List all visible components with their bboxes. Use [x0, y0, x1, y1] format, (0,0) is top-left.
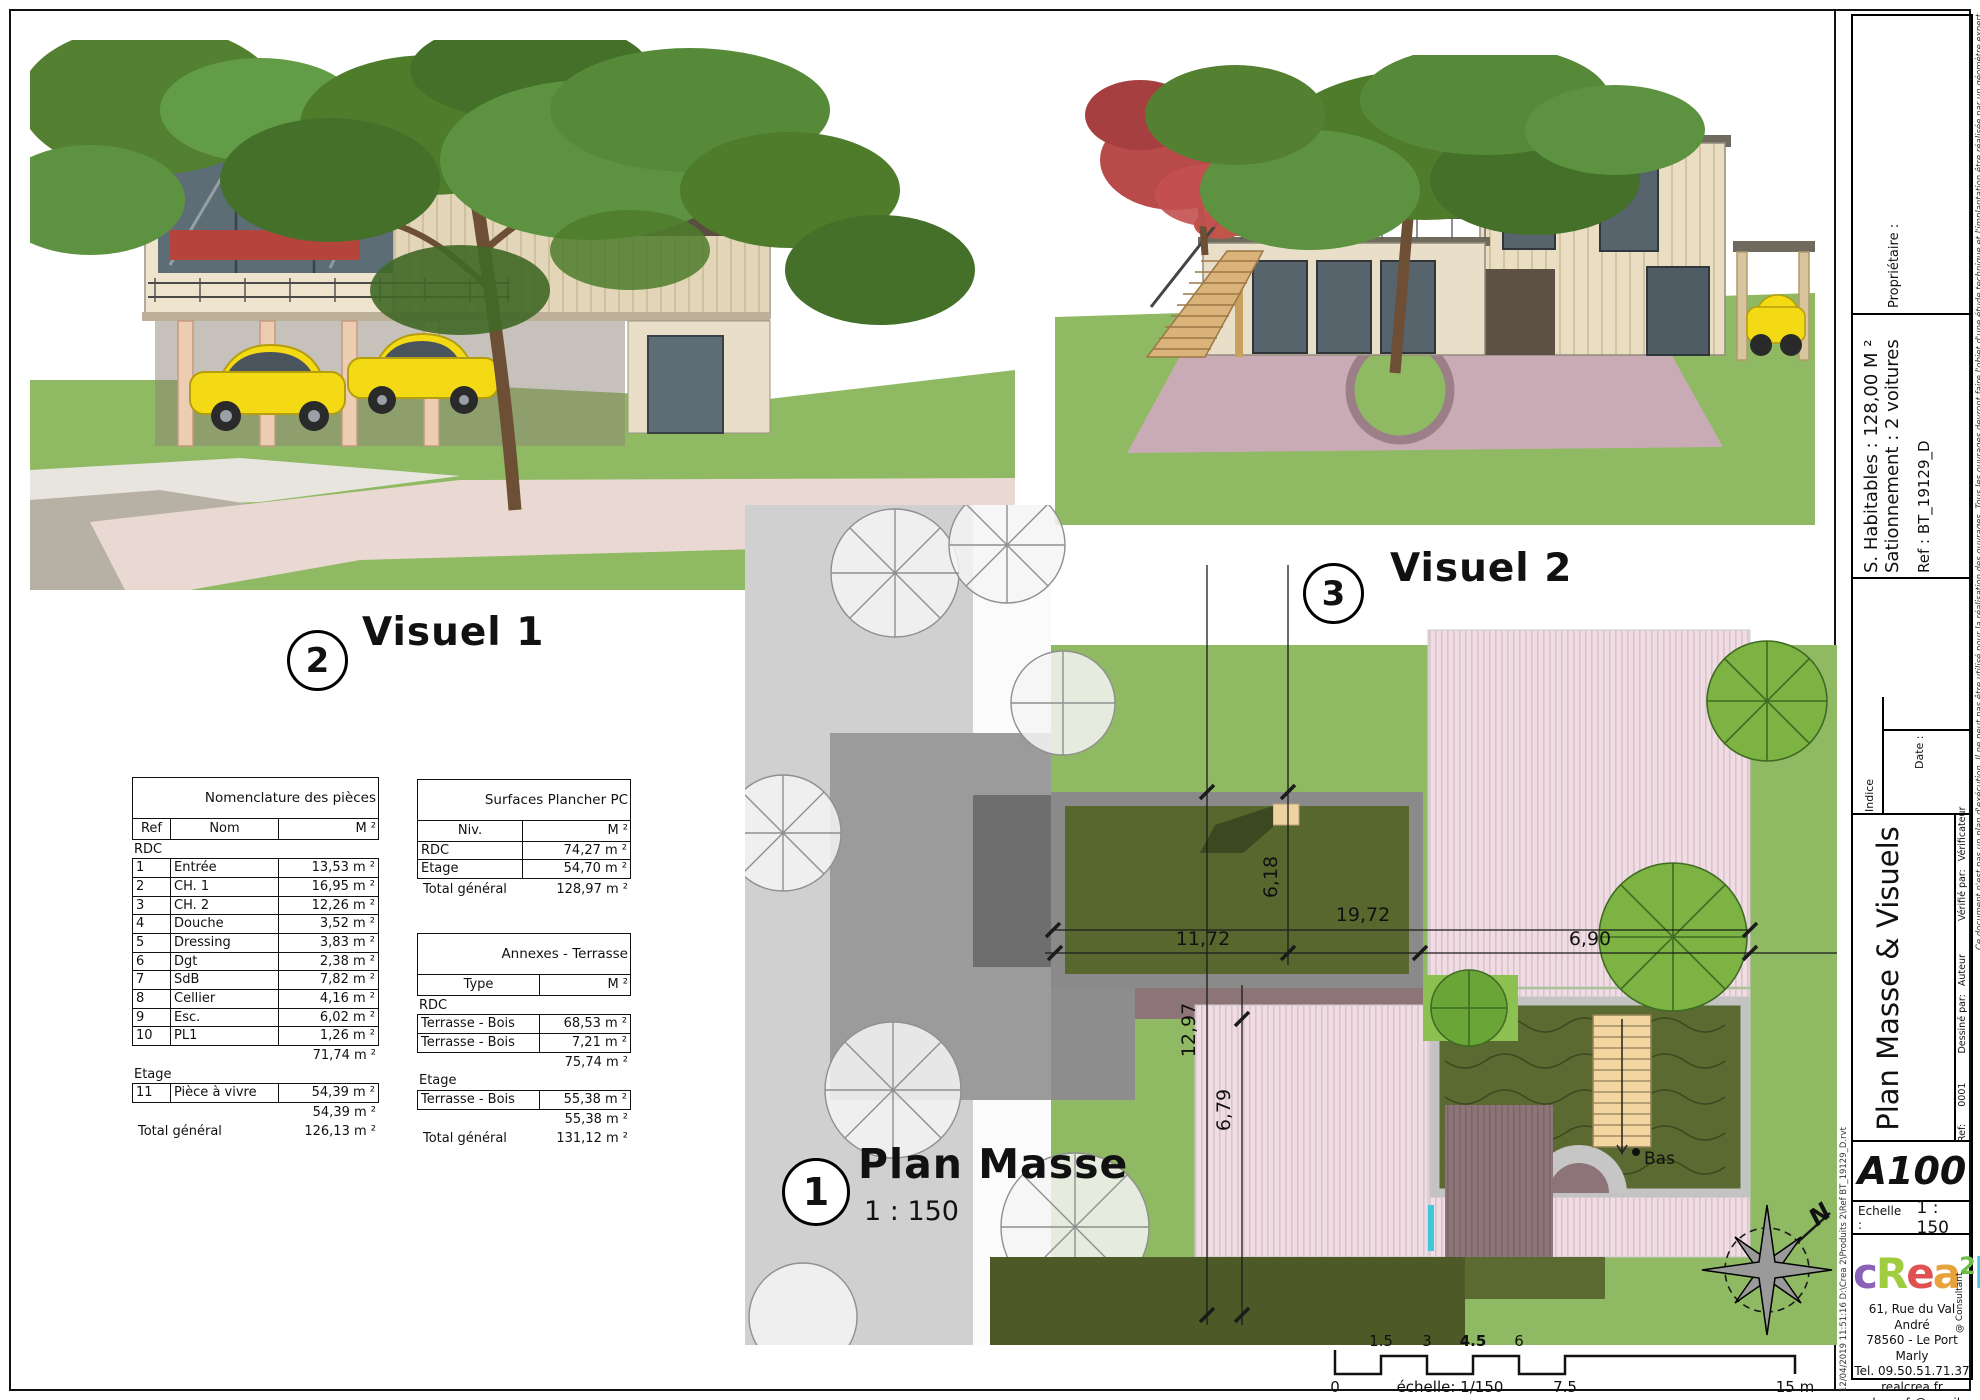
revision-box: Indice Date :: [1853, 579, 1971, 815]
address-line: 61, Rue du Val André: [1853, 1302, 1971, 1333]
scale-tick: 6: [1514, 1334, 1524, 1350]
logo-letter: e: [1906, 1249, 1933, 1298]
title-block: Propriétaire : S. Habitables : 128,00 M …: [1851, 14, 1973, 1380]
project-info-box: S. Habitables : 128,00 M ² Sationnement …: [1853, 315, 1971, 579]
table-row: 8Cellier4,16 m ²: [133, 989, 379, 1008]
legal-disclaimer: Ce document n'est pas un plan d'exécutio…: [1975, 184, 1980, 950]
ref-label: Ref:: [1957, 1124, 1968, 1142]
subtotal: 55,38 m ²: [417, 1110, 630, 1129]
table-row: 4Douche3,52 m ²: [133, 915, 379, 934]
drawn-by-label: Dessiné par:: [1957, 994, 1968, 1053]
project-ref: Ref : BT_19129_D: [1915, 321, 1933, 573]
checked-by-label: Vérifié par:: [1957, 869, 1968, 921]
file-path-stamp: 12/04/2019 11:51:16 D:\Crea 2\Produits 2…: [1839, 968, 1849, 1392]
col-header: Nom: [171, 819, 279, 840]
checked-by: Vérificateur: [1957, 807, 1968, 862]
visuel2-render: [1055, 55, 1815, 525]
table-row: 10PL11,26 m ²: [133, 1027, 379, 1046]
table-row: 1Entrée13,53 m ²: [133, 859, 379, 878]
table-row: Terrasse - Bois55,38 m ²: [418, 1091, 631, 1110]
table-row: Terrasse - Bois7,21 m ²: [418, 1034, 631, 1053]
dim-12-97: 12,97: [1178, 1003, 1200, 1057]
logo-letter: l: [1974, 1249, 1980, 1298]
table-title: Annexes - Terrasse: [418, 934, 631, 975]
scale-tick: 4.5: [1460, 1334, 1487, 1350]
company-logo: cRea2l: [1853, 1249, 1971, 1298]
visuel2-title: Visuel 2: [1390, 546, 1572, 591]
section-label: RDC: [417, 996, 630, 1015]
total-label: Total général: [423, 883, 507, 897]
col-header: Niv.: [418, 821, 523, 842]
sheet-title-box: Plan Masse & Visuels Ref: 0001 Dessiné p…: [1853, 815, 1971, 1142]
plan-number-bubble: 1: [782, 1158, 850, 1226]
section-label: Etage: [132, 1065, 378, 1084]
surfaces-table: Surfaces Plancher PC Niv. M ² RDC74,27 m…: [417, 779, 630, 897]
drawn-by: Auteur: [1957, 954, 1968, 986]
logo-letter: c: [1853, 1249, 1876, 1298]
plan-number: 1: [803, 1170, 829, 1214]
parking: Sationnement : 2 voitures: [1882, 321, 1903, 573]
scale-caption: échelle: 1/150: [1397, 1378, 1504, 1396]
subtotal: 71,74 m ²: [132, 1046, 378, 1065]
table-row: 6Dgt2,38 m ²: [133, 952, 379, 971]
dim-6-18: 6,18: [1260, 856, 1282, 898]
owner-box: Propriétaire :: [1853, 16, 1971, 315]
subtotal: 54,39 m ²: [132, 1103, 378, 1122]
visuel2-number: 3: [1322, 574, 1346, 614]
plan-scale: 1 : 150: [864, 1196, 959, 1227]
scale-tick: 7.5: [1553, 1378, 1577, 1396]
table-row: Terrasse - Bois68,53 m ²: [418, 1015, 631, 1034]
visuel2-number-bubble: 3: [1303, 563, 1364, 624]
col-header: M ²: [523, 821, 631, 842]
scale-tick: 3: [1422, 1334, 1432, 1350]
scale-label: Echelle :: [1858, 1204, 1905, 1232]
stair-bas-label: Bas: [1644, 1149, 1675, 1169]
scale-box: Echelle : 1 : 150: [1853, 1202, 1971, 1235]
table-title: Nomenclature des pièces: [133, 778, 379, 819]
company-box: cRea2l @ Consultant 61, Rue du Val André…: [1853, 1235, 1971, 1379]
address-line: 78560 - Le Port Marly: [1853, 1333, 1971, 1364]
habitable-area: S. Habitables : 128,00 M ²: [1861, 321, 1882, 573]
dim-19-72: 19,72: [1336, 904, 1390, 926]
table-row: 3CH. 212,26 m ²: [133, 896, 379, 915]
table-title: Surfaces Plancher PC: [418, 780, 631, 821]
logo-letter: R: [1876, 1249, 1906, 1298]
address-line: realcrea.fr: [1853, 1380, 1971, 1396]
scale-tick: 0: [1330, 1378, 1340, 1396]
section-label: Etage: [417, 1071, 630, 1090]
drawing-sheet: Bas N: [0, 0, 1980, 1400]
indice-label: Indice: [1863, 707, 1876, 812]
col-header: Ref: [133, 819, 171, 840]
col-header: M ²: [279, 819, 379, 840]
dim-6-90: 6,90: [1569, 928, 1611, 950]
dim-6-79: 6,79: [1213, 1089, 1235, 1131]
subtotal: 75,74 m ²: [417, 1053, 630, 1072]
sheet-number: A100: [1853, 1142, 1971, 1202]
scale-bar: 1.5 3 4.5 6 0 échelle: 1/150 7.5 15 m: [1290, 1334, 1830, 1396]
total-value: 131,12 m ²: [556, 1132, 628, 1146]
address-line: Tel. 09.50.51.71.37: [1853, 1364, 1971, 1380]
annexes-table: Annexes - Terrasse Type M ² RDC Terrasse…: [417, 933, 630, 1146]
table-row: Etage54,70 m ²: [418, 860, 631, 879]
table-row: 2CH. 116,95 m ²: [133, 878, 379, 897]
col-header: Type: [418, 975, 540, 996]
total-value: 126,13 m ²: [304, 1125, 376, 1139]
plan-title: Plan Masse: [858, 1140, 1128, 1188]
table-row: 11Pièce à vivre54,39 m ²: [133, 1084, 379, 1103]
visuel1-number: 2: [306, 641, 330, 681]
table-row: 5Dressing3,83 m ²: [133, 934, 379, 953]
total-label: Total général: [423, 1132, 507, 1146]
owner-label: Propriétaire :: [1887, 24, 1902, 308]
consultant-label: @ Consultant: [1955, 1247, 1965, 1333]
sheet-title: Plan Masse & Visuels: [1871, 815, 1905, 1142]
total-label: Total général: [138, 1125, 222, 1139]
scale-tick: 15 m: [1776, 1378, 1814, 1396]
scale-value: 1 : 150: [1917, 1198, 1971, 1238]
table-row: RDC74,27 m ²: [418, 841, 631, 860]
nomenclature-table: Nomenclature des pièces Ref Nom M ² RDC …: [132, 777, 378, 1139]
section-label: RDC: [132, 840, 378, 859]
table-row: 9Esc.6,02 m ²: [133, 1008, 379, 1027]
table-row: 7SdB7,82 m ²: [133, 971, 379, 990]
col-header: M ²: [540, 975, 631, 996]
scale-tick: 1.5: [1369, 1334, 1393, 1350]
dim-11-72: 11,72: [1176, 928, 1230, 950]
total-value: 128,97 m ²: [556, 883, 628, 897]
date-label: Date :: [1913, 689, 1926, 769]
visuel1-title: Visuel 1: [362, 610, 544, 655]
visuel1-number-bubble: 2: [287, 630, 348, 691]
address-line: realcrea.fr@gmail.com: [1853, 1396, 1971, 1400]
ref-num: 0001: [1957, 1083, 1968, 1107]
